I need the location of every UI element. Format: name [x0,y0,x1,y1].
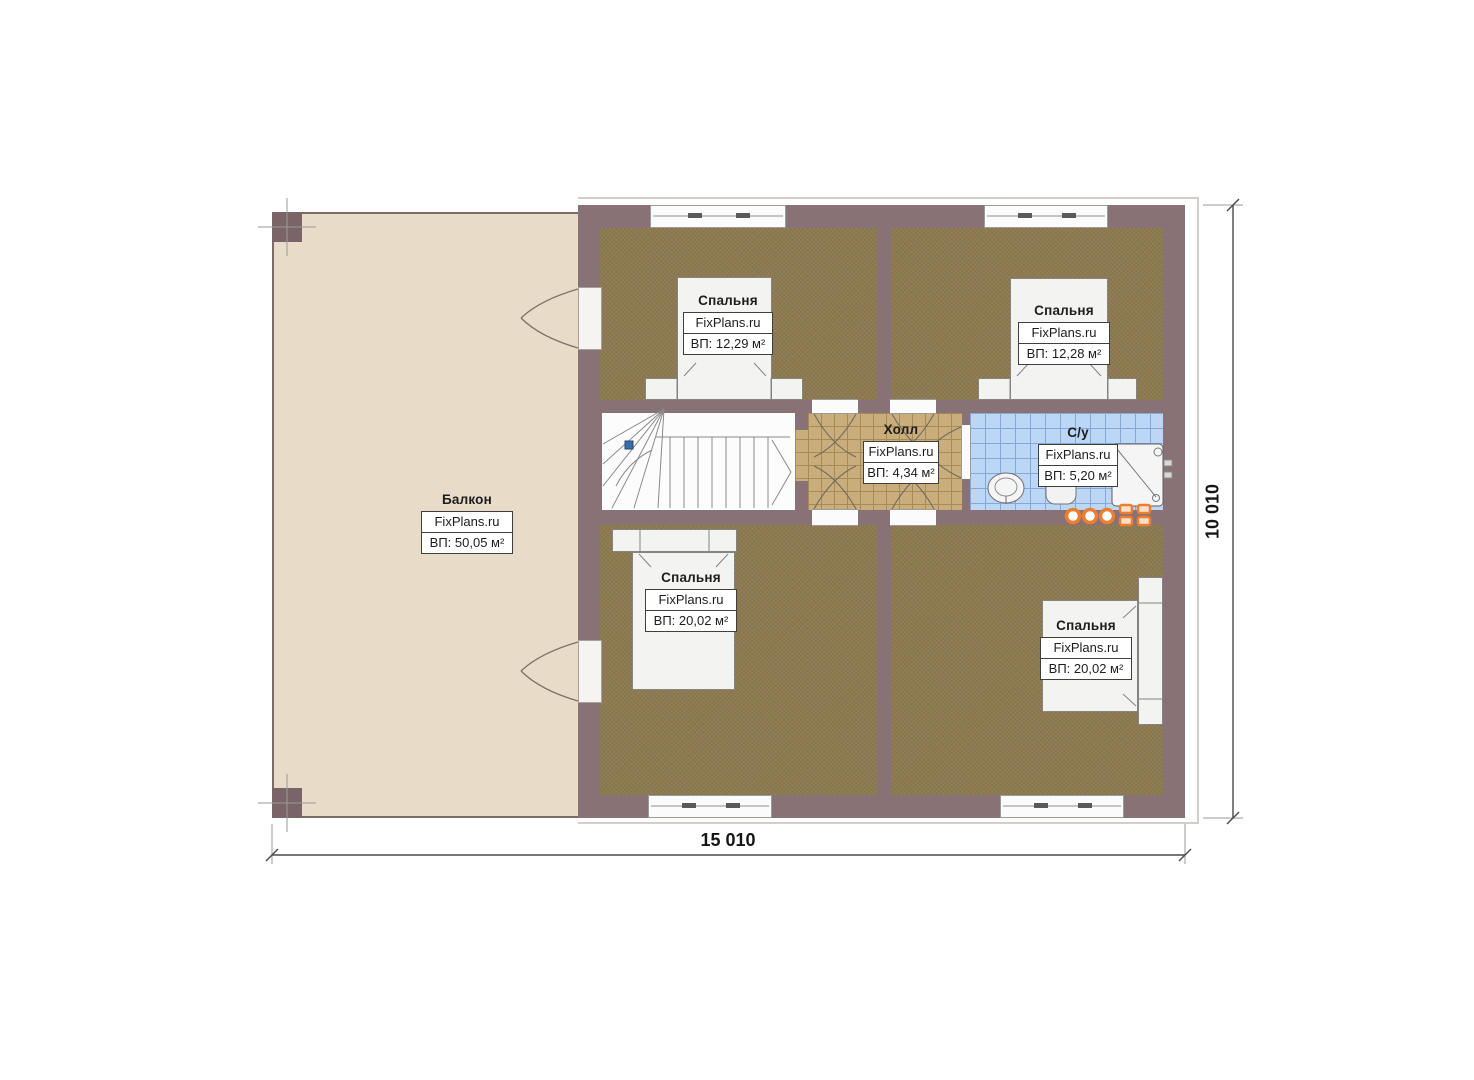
area-label: ВП: 5,20 м² [1039,465,1117,486]
door-opening-hall-bottom-right [890,509,936,526]
door-opening-hall-bottom-left [812,509,858,526]
window-bottom-right [1000,795,1124,818]
brand-label: FixPlans.ru [1039,445,1117,465]
dimension-height-label: 10 010 [1203,472,1224,552]
room-label-bedroom-bottom-left: Спальня FixPlans.ru ВП: 20,02 м² [645,570,737,632]
nightstand-band-bottom-right [1138,577,1163,725]
room-name: Спальня [1040,618,1132,635]
brand-label: FixPlans.ru [422,512,512,532]
room-name: Спальня [1018,303,1110,320]
room-label-hall: Холл FixPlans.ru ВП: 4,34 м² [863,422,939,484]
floor-plan: Балкон FixPlans.ru ВП: 50,05 м² Спальня … [0,0,1474,1080]
brand-label: FixPlans.ru [1019,323,1109,343]
hall-wall-stub-top [795,400,808,430]
area-label: ВП: 20,02 м² [1041,658,1131,679]
corner-post-top [272,212,302,242]
room-name: Спальня [683,293,773,310]
door-opening-hall-top-right [890,399,936,414]
window-top-left [650,205,786,228]
room-label-bedroom-top-right: Спальня FixPlans.ru ВП: 12,28 м² [1018,303,1110,365]
balcony-door-top [578,287,602,350]
balcony-door-bottom [578,640,602,703]
room-name: С/у [1038,425,1118,442]
hall-wall-stub-bottom [795,481,808,510]
stairwell-floor [602,413,795,510]
window-top-right [984,205,1108,228]
room-label-balcony: Балкон FixPlans.ru ВП: 50,05 м² [421,492,513,554]
room-label-bathroom: С/у FixPlans.ru ВП: 5,20 м² [1038,425,1118,487]
brand-label: FixPlans.ru [864,442,938,462]
brand-label: FixPlans.ru [684,313,772,333]
dimension-width-label: 15 010 [648,830,808,851]
brand-label: FixPlans.ru [646,590,736,610]
door-opening-hall-top-left [812,399,858,414]
room-label-bedroom-top-left: Спальня FixPlans.ru ВП: 12,29 м² [683,293,773,355]
room-name: Балкон [421,492,513,509]
area-label: ВП: 12,29 м² [684,333,772,354]
window-bottom-left [648,795,772,818]
area-label: ВП: 12,28 м² [1019,343,1109,364]
room-name: Спальня [645,570,737,587]
corner-post-bottom [272,788,302,818]
brand-label: FixPlans.ru [1041,638,1131,658]
room-name: Холл [863,422,939,439]
nightstand-band-bottom-left [612,529,737,552]
bathroom-door-opening [961,425,971,479]
room-label-bedroom-bottom-right: Спальня FixPlans.ru ВП: 20,02 м² [1040,618,1132,680]
area-label: ВП: 4,34 м² [864,462,938,483]
area-label: ВП: 50,05 м² [422,532,512,553]
area-label: ВП: 20,02 м² [646,610,736,631]
